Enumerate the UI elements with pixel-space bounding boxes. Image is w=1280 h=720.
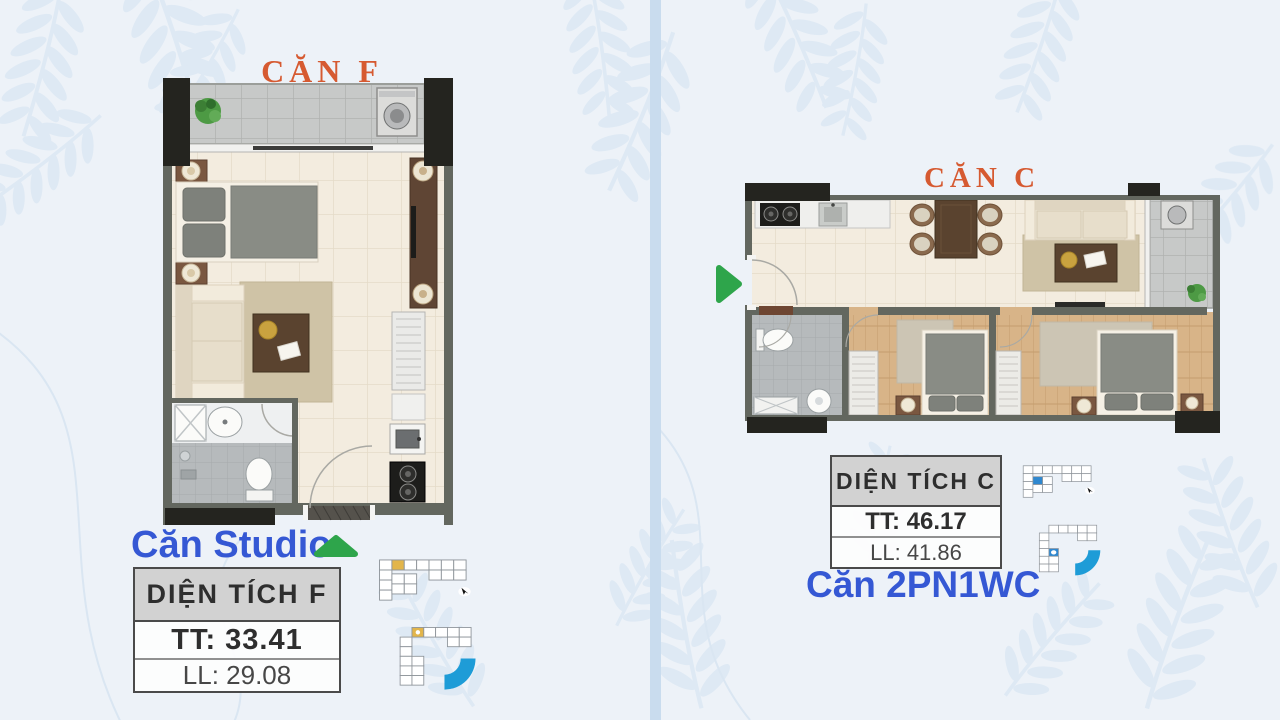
kitchen-strip bbox=[390, 312, 425, 502]
tv-console bbox=[410, 158, 437, 308]
floor-plan-poster: CĂN F bbox=[0, 0, 1280, 720]
kitchen-counter bbox=[755, 200, 890, 228]
floor-plan-can-f bbox=[163, 78, 453, 525]
cursor-icon bbox=[458, 587, 470, 596]
plant-icon bbox=[195, 98, 221, 124]
area-table-f-row-tt: TT: 33.41 bbox=[135, 622, 339, 658]
area-table-f-header: DIỆN TÍCH F bbox=[135, 569, 339, 622]
area-table-c: DIỆN TÍCH C TT: 46.17 LL: 41.86 bbox=[830, 455, 1002, 569]
keyplan-site-upper-f bbox=[378, 558, 480, 616]
sliding-door bbox=[188, 144, 426, 152]
green-right-arrow-icon bbox=[714, 262, 744, 306]
area-table-c-row-ll: LL: 41.86 bbox=[832, 536, 1000, 567]
keyplan-site-lower-c bbox=[1038, 524, 1110, 579]
keyplan-site-lower-f bbox=[398, 626, 488, 694]
area-table-f: DIỆN TÍCH F TT: 33.41 LL: 29.08 bbox=[133, 567, 341, 693]
cursor-icon bbox=[1085, 487, 1095, 494]
floor-plan-can-c bbox=[745, 183, 1220, 433]
panel-divider bbox=[650, 0, 661, 720]
area-table-c-header: DIỆN TÍCH C bbox=[832, 457, 1000, 507]
bathroom bbox=[172, 398, 298, 504]
balcony bbox=[188, 84, 426, 152]
unit-type-label-f: Căn Studio bbox=[131, 524, 332, 567]
unit-type-label-c: Căn 2PN1WC bbox=[806, 564, 1040, 606]
green-up-arrow-icon bbox=[312, 533, 360, 559]
balcony bbox=[1145, 198, 1213, 308]
area-table-f-row-ll: LL: 29.08 bbox=[135, 658, 339, 691]
keyplan-site-upper-c bbox=[1022, 464, 1102, 510]
washing-machine bbox=[377, 88, 417, 136]
sofa-living-area bbox=[176, 282, 332, 402]
area-table-c-row-tt: TT: 46.17 bbox=[832, 507, 1000, 536]
